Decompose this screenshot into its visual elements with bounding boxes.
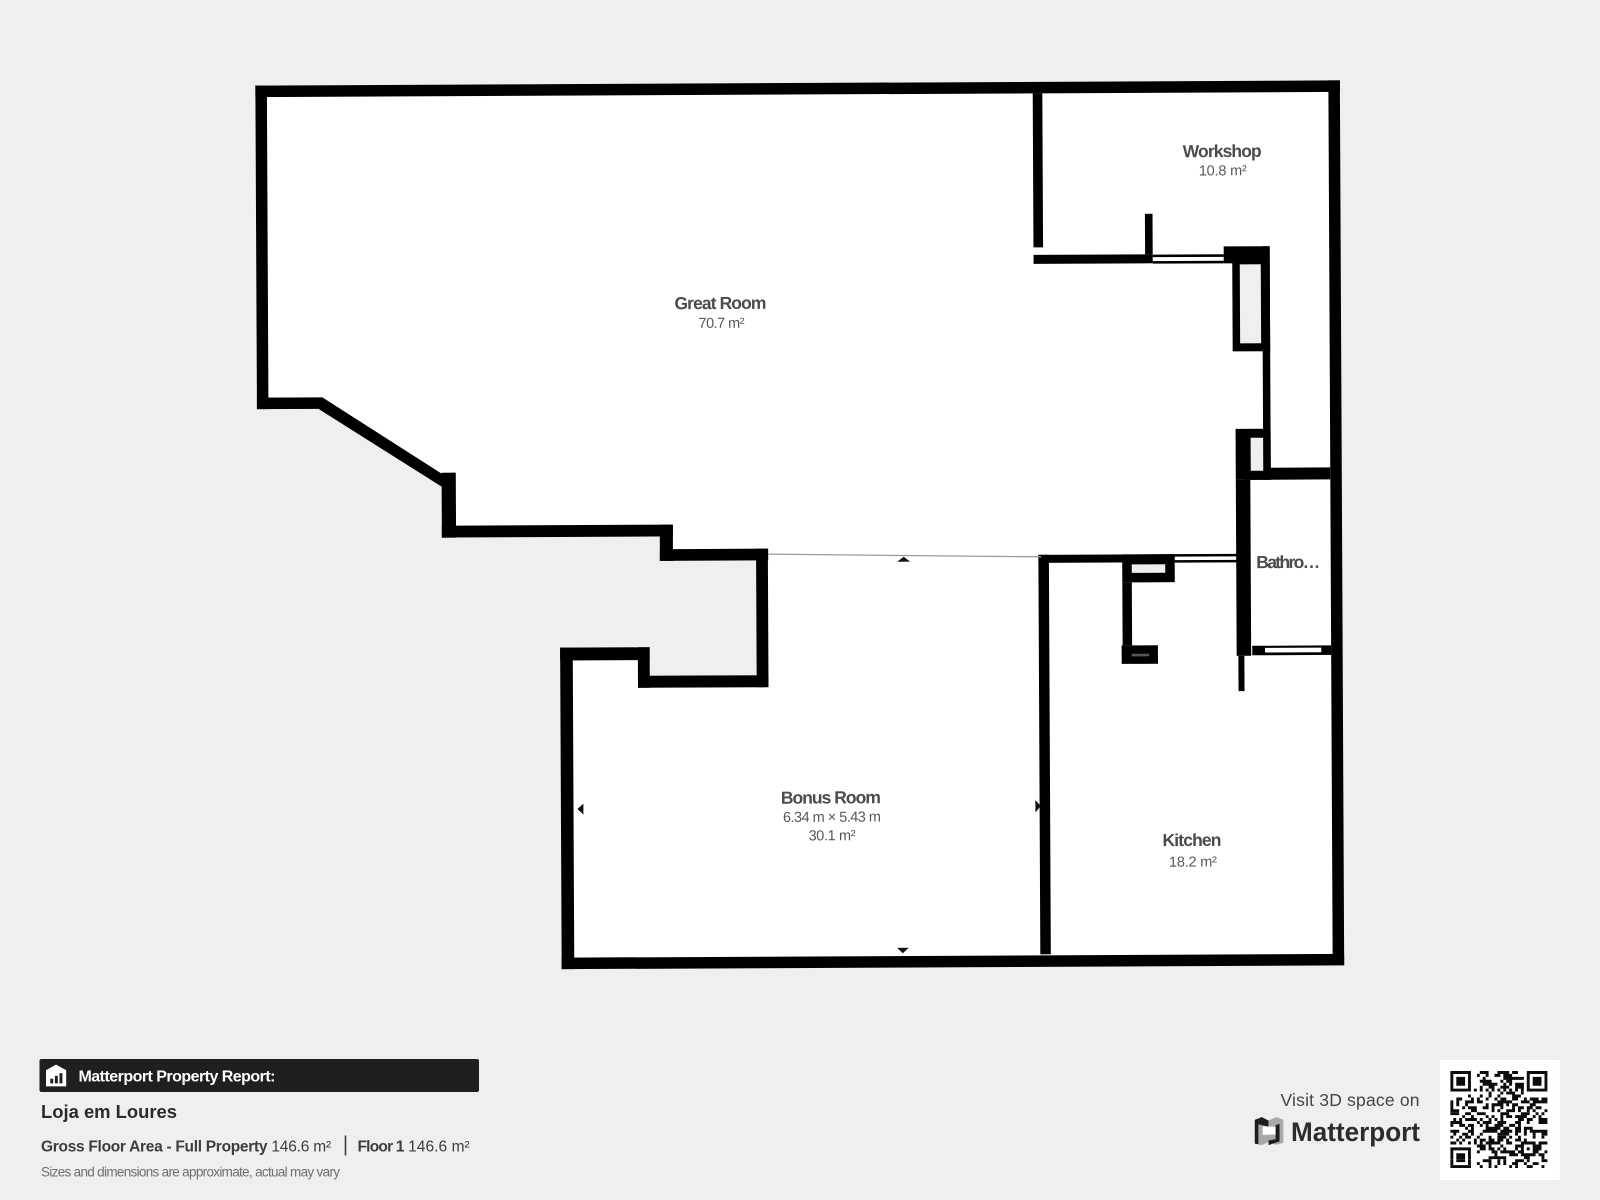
svg-text:Loja em Loures: Loja em Loures (41, 1101, 177, 1122)
svg-text:18.2 m²: 18.2 m² (1169, 854, 1217, 870)
svg-text:Visit 3D space on: Visit 3D space on (1281, 1090, 1420, 1110)
svg-text:Bathro…: Bathro… (1256, 552, 1320, 572)
svg-text:Gross Floor Area - Full Proper: Gross Floor Area - Full Property 146.6 m… (41, 1138, 331, 1155)
svg-text:6.34 m × 5.43 m: 6.34 m × 5.43 m (783, 810, 881, 826)
svg-text:10.8 m²: 10.8 m² (1199, 163, 1247, 179)
svg-text:Matterport Property Report:: Matterport Property Report: (79, 1069, 276, 1086)
svg-text:70.7 m²: 70.7 m² (699, 316, 745, 332)
svg-text:Bonus Room: Bonus Room (781, 787, 881, 807)
svg-text:Floor 1 146.6 m²: Floor 1 146.6 m² (358, 1138, 470, 1155)
svg-text:Great Room: Great Room (674, 293, 766, 313)
svg-text:Kitchen: Kitchen (1162, 830, 1221, 850)
svg-text:Workshop: Workshop (1183, 141, 1262, 161)
svg-text:Matterport: Matterport (1291, 1117, 1420, 1147)
svg-text:Sizes and dimensions are appro: Sizes and dimensions are approximate, ac… (41, 1164, 340, 1179)
svg-text:30.1 m²: 30.1 m² (809, 828, 856, 844)
